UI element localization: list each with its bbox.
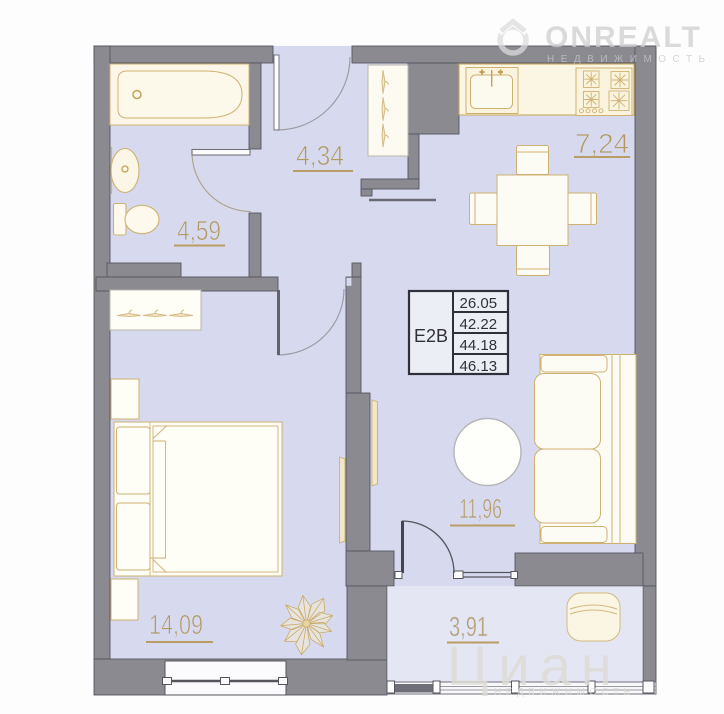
svg-text:4,59: 4,59 <box>177 215 221 246</box>
svg-text:НЕДВИЖИМОСТЬ: НЕДВИЖИМОСТЬ <box>547 54 712 65</box>
svg-text:ONREALT: ONREALT <box>545 21 702 54</box>
svg-text:11,96: 11,96 <box>459 493 502 524</box>
svg-text:НЕДВИЖИМОСТЬ: НЕДВИЖИМОСТЬ <box>494 687 635 698</box>
svg-text:46.13: 46.13 <box>460 358 498 375</box>
svg-text:4,34: 4,34 <box>296 140 344 171</box>
svg-text:44.18: 44.18 <box>460 337 498 354</box>
svg-text:14,09: 14,09 <box>149 609 203 640</box>
svg-text:26.05: 26.05 <box>460 295 498 312</box>
svg-text:E2B: E2B <box>414 326 448 346</box>
svg-text:42.22: 42.22 <box>460 316 498 333</box>
svg-text:7,24: 7,24 <box>575 128 629 159</box>
